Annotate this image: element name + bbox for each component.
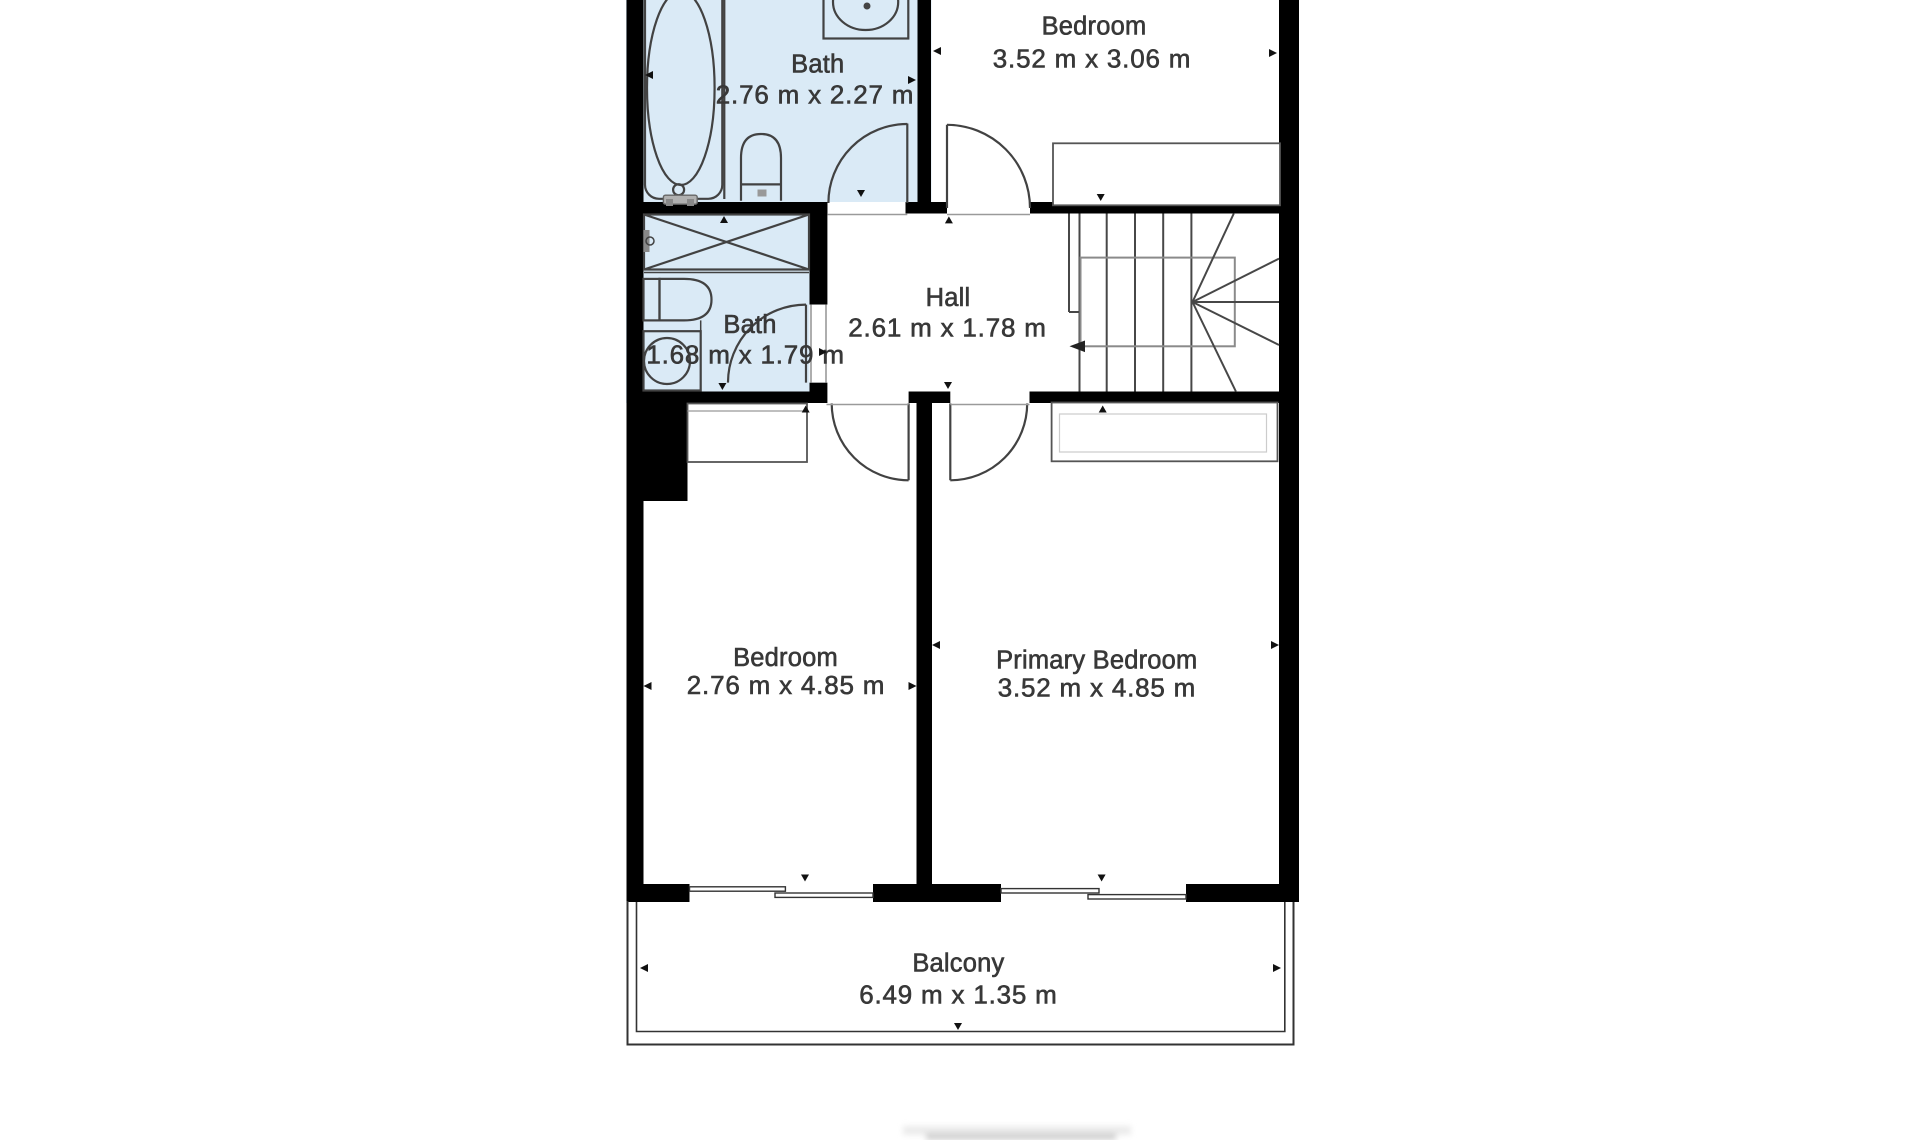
svg-text:Bedroom: Bedroom <box>1042 13 1147 41</box>
svg-text:2.76 m x 4.85 m: 2.76 m x 4.85 m <box>687 670 885 700</box>
svg-text:Bedroom: Bedroom <box>733 644 838 672</box>
svg-text:Primary Bedroom: Primary Bedroom <box>996 647 1197 675</box>
svg-text:1.68 m x 1.79 m: 1.68 m x 1.79 m <box>646 340 844 370</box>
svg-text:3.52 m x 4.85 m: 3.52 m x 4.85 m <box>998 672 1196 702</box>
svg-text:Balcony: Balcony <box>912 950 1004 978</box>
svg-text:6.49 m x 1.35 m: 6.49 m x 1.35 m <box>859 980 1057 1010</box>
svg-text:3.52 m x 3.06 m: 3.52 m x 3.06 m <box>993 43 1191 73</box>
svg-text:Hall: Hall <box>926 284 971 312</box>
svg-text:2.76 m x 2.27 m: 2.76 m x 2.27 m <box>716 79 914 109</box>
svg-text:2.61 m x 1.78 m: 2.61 m x 1.78 m <box>848 312 1046 342</box>
svg-text:Bath: Bath <box>791 51 844 79</box>
svg-text:Bath: Bath <box>723 311 776 339</box>
